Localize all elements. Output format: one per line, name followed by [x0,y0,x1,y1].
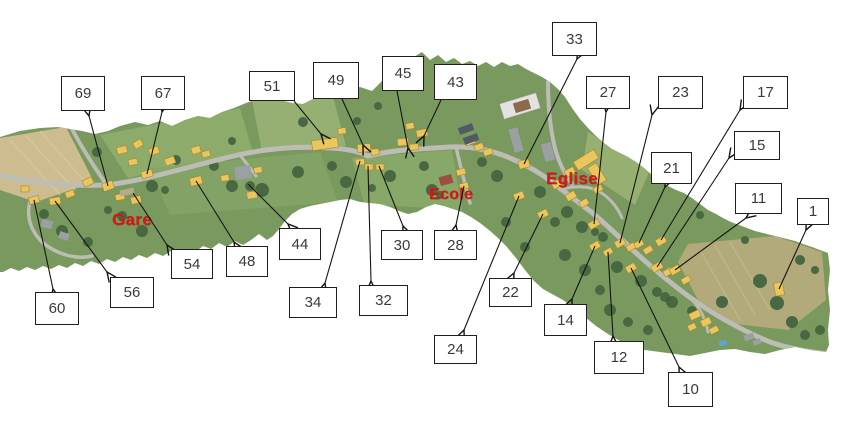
annotation-arrow-67 [147,112,162,174]
annotation-arrow-56 [55,201,107,272]
annotation-arrow-49 [342,99,363,145]
annotation-arrow-24 [464,196,519,330]
annotation-arrow-1 [779,230,806,289]
annotation-arrow-17 [661,110,740,240]
annotation-arrow-51 [294,101,321,134]
annotation-arrow-21 [639,187,665,243]
annotation-arrow-15 [657,158,729,267]
annotated-aerial-map: GareEcoleEglise 696751494543332723171521… [0,0,843,429]
annotation-arrow-69 [89,116,108,186]
annotation-arrow-14 [572,246,595,299]
annotation-arrow-28 [456,186,464,225]
annotation-arrow-54 [133,193,167,245]
annotation-arrow-30 [379,166,403,226]
annotation-arrow-33 [524,59,577,164]
annotation-arrow-12 [608,252,613,336]
annotation-arrow-45 [397,91,408,148]
annotation-arrow-32 [368,166,371,281]
annotation-arrow-43 [424,100,441,136]
annotation-arrow-23 [620,115,652,243]
annotation-arrow-34 [325,161,360,283]
annotation-arrow-22 [514,214,543,273]
annotation-arrows [0,0,843,429]
annotation-arrow-11 [675,218,746,270]
annotation-arrow-48 [196,181,234,242]
annotation-arrow-10 [631,268,679,367]
annotation-arrow-44 [248,184,288,224]
annotation-arrow-27 [594,112,606,224]
annotation-arrow-60 [34,200,53,289]
